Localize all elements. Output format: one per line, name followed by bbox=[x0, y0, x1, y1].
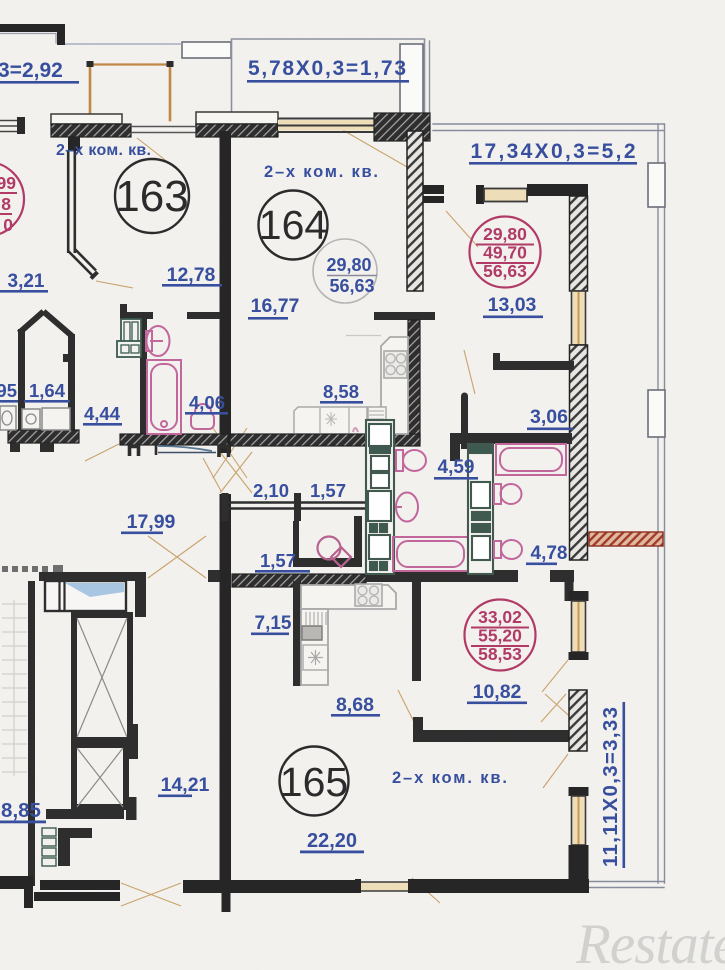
svg-text:2–х ком. кв.: 2–х ком. кв. bbox=[392, 769, 507, 787]
svg-text:56,63: 56,63 bbox=[483, 261, 527, 281]
svg-text:11,11X0,3=3,33: 11,11X0,3=3,33 bbox=[599, 707, 622, 867]
svg-text:95: 95 bbox=[0, 380, 17, 401]
svg-text:1,57: 1,57 bbox=[260, 550, 296, 571]
svg-text:58,53: 58,53 bbox=[478, 644, 522, 664]
svg-text:4,78: 4,78 bbox=[531, 543, 568, 564]
svg-text:56,63: 56,63 bbox=[329, 276, 374, 296]
svg-text:3,21: 3,21 bbox=[8, 271, 45, 292]
svg-text:163: 163 bbox=[115, 172, 188, 221]
svg-text:4,59: 4,59 bbox=[438, 457, 475, 478]
svg-text:1,57: 1,57 bbox=[310, 480, 346, 501]
svg-text:14,21: 14,21 bbox=[161, 774, 210, 796]
svg-text:8,85: 8,85 bbox=[1, 799, 41, 822]
svg-text:2–х ком. кв.: 2–х ком. кв. bbox=[264, 163, 378, 181]
svg-text:4,06: 4,06 bbox=[189, 392, 225, 413]
svg-text:8: 8 bbox=[1, 194, 11, 214]
svg-text:12,78: 12,78 bbox=[167, 264, 216, 286]
svg-text:8,58: 8,58 bbox=[323, 381, 359, 402]
svg-text:22,20: 22,20 bbox=[307, 830, 357, 852]
svg-text:10,82: 10,82 bbox=[473, 681, 522, 703]
svg-text:5,78X0,3=1,73: 5,78X0,3=1,73 bbox=[248, 57, 406, 80]
svg-text:49,70: 49,70 bbox=[483, 243, 527, 263]
svg-text:3=2,92: 3=2,92 bbox=[0, 59, 63, 82]
svg-text:Restate: Restate bbox=[575, 913, 725, 970]
svg-text:2–х ком. кв.: 2–х ком. кв. bbox=[56, 142, 151, 159]
svg-text:164: 164 bbox=[259, 202, 327, 248]
svg-text:17,34X0,3=5,2: 17,34X0,3=5,2 bbox=[471, 140, 636, 163]
svg-text:2,10: 2,10 bbox=[253, 480, 289, 501]
svg-text:29,80: 29,80 bbox=[483, 224, 527, 244]
svg-text:29,80: 29,80 bbox=[326, 255, 371, 275]
svg-text:3,06: 3,06 bbox=[530, 406, 568, 428]
svg-text:17,99: 17,99 bbox=[127, 511, 176, 533]
svg-text:165: 165 bbox=[280, 759, 348, 805]
svg-text:4,44: 4,44 bbox=[84, 403, 121, 424]
svg-text:99: 99 bbox=[0, 173, 16, 193]
svg-text:16,77: 16,77 bbox=[251, 295, 300, 317]
svg-text:0: 0 bbox=[3, 215, 13, 235]
svg-text:1,64: 1,64 bbox=[29, 380, 66, 401]
svg-text:8,68: 8,68 bbox=[336, 694, 374, 716]
svg-text:7,15: 7,15 bbox=[255, 613, 292, 634]
svg-text:13,03: 13,03 bbox=[488, 294, 537, 316]
svg-text:33,02: 33,02 bbox=[478, 607, 522, 627]
svg-text:55,20: 55,20 bbox=[478, 626, 522, 646]
